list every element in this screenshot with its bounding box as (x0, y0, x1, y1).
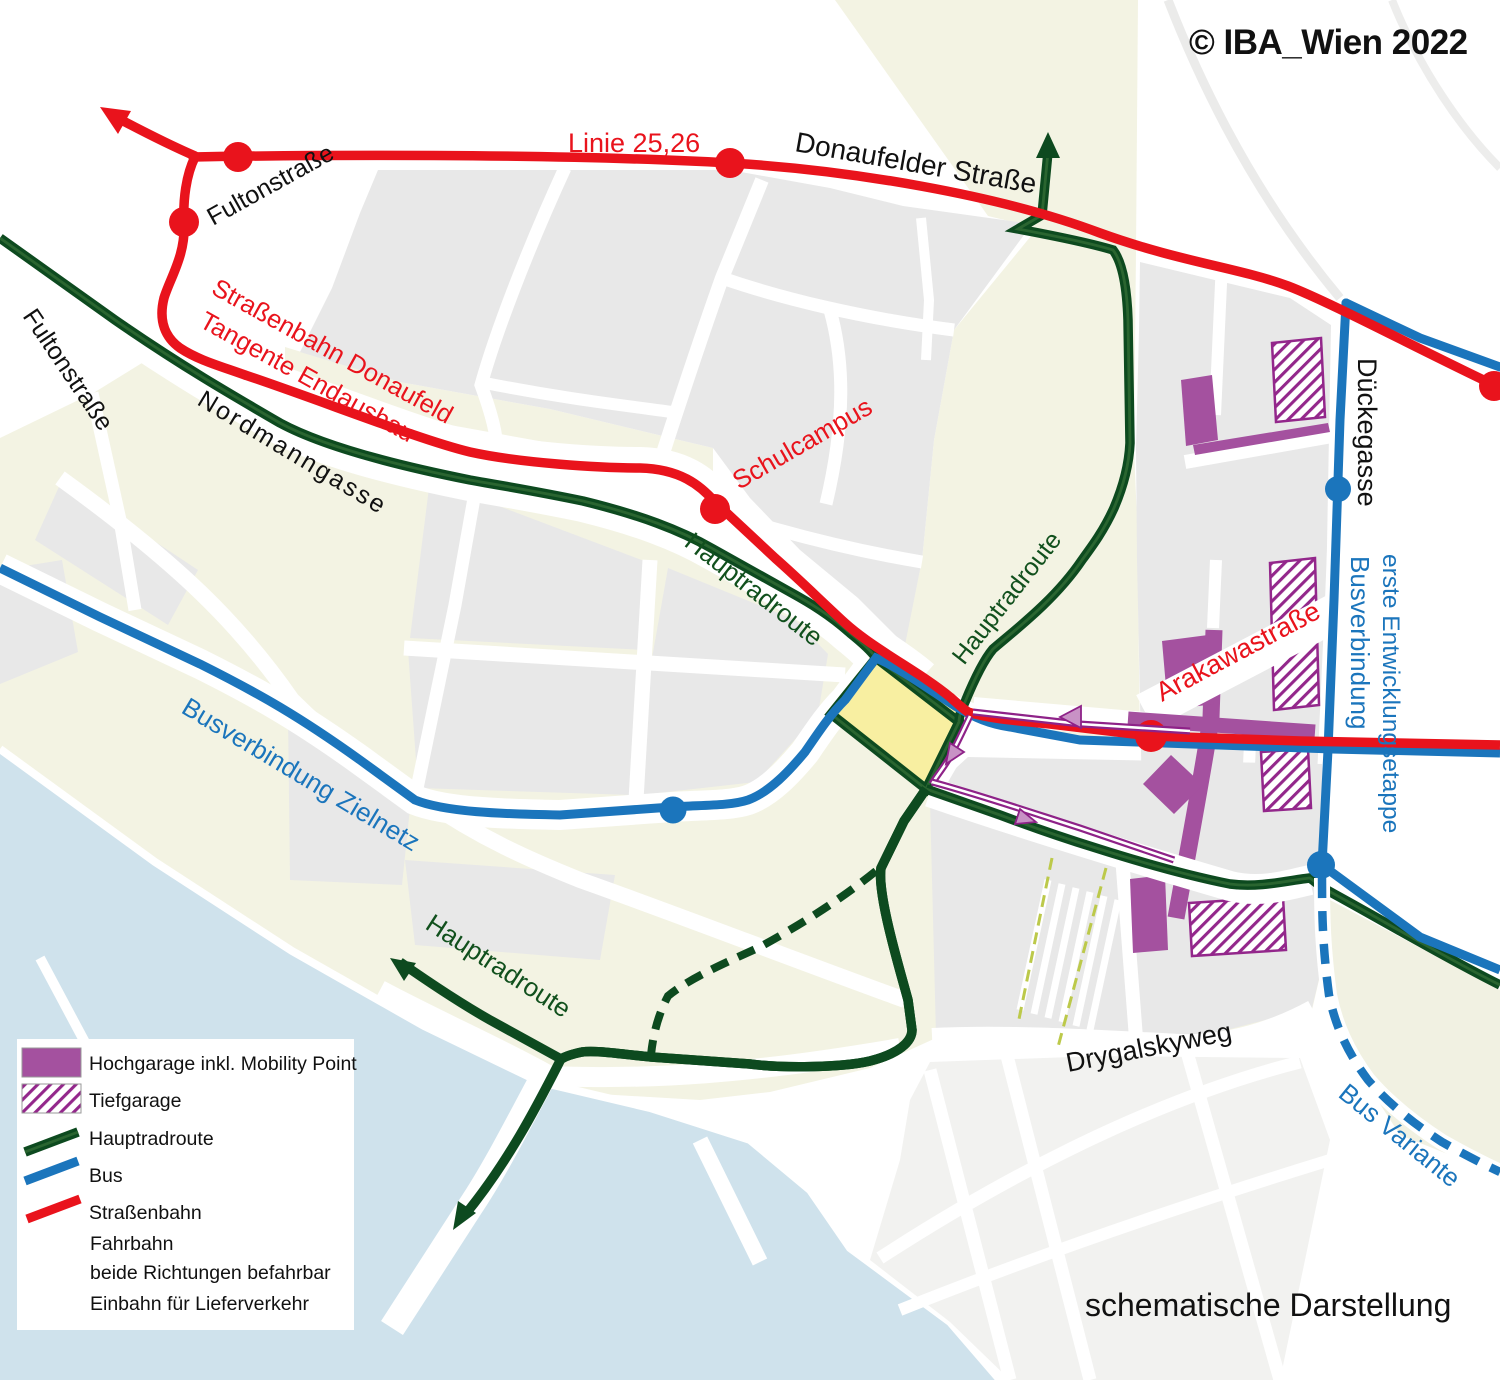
svg-text:Bus: Bus (89, 1165, 123, 1187)
svg-text:Busverbindung: Busverbindung (1345, 556, 1375, 729)
svg-text:Tiefgarage: Tiefgarage (89, 1090, 182, 1112)
svg-text:Straßenbahn: Straßenbahn (89, 1202, 202, 1224)
svg-text:beide Richtungen befahrbar: beide Richtungen befahrbar (90, 1262, 331, 1284)
svg-text:Fahrbahn: Fahrbahn (90, 1233, 173, 1255)
svg-text:Dückegasse: Dückegasse (1352, 358, 1382, 507)
svg-text:Einbahn für Lieferverkehr: Einbahn für Lieferverkehr (90, 1293, 309, 1315)
svg-text:Hauptradroute: Hauptradroute (89, 1128, 214, 1150)
svg-text:Hochgarage inkl. Mobility Poin: Hochgarage inkl. Mobility Point (89, 1053, 357, 1075)
svg-text:© IBA_Wien 2022: © IBA_Wien 2022 (1189, 23, 1468, 62)
svg-text:Linie 25,26: Linie 25,26 (568, 128, 700, 158)
svg-text:schematische Darstellung: schematische Darstellung (1085, 1287, 1451, 1323)
svg-text:erste Entwicklungsetappe: erste Entwicklungsetappe (1377, 554, 1404, 833)
